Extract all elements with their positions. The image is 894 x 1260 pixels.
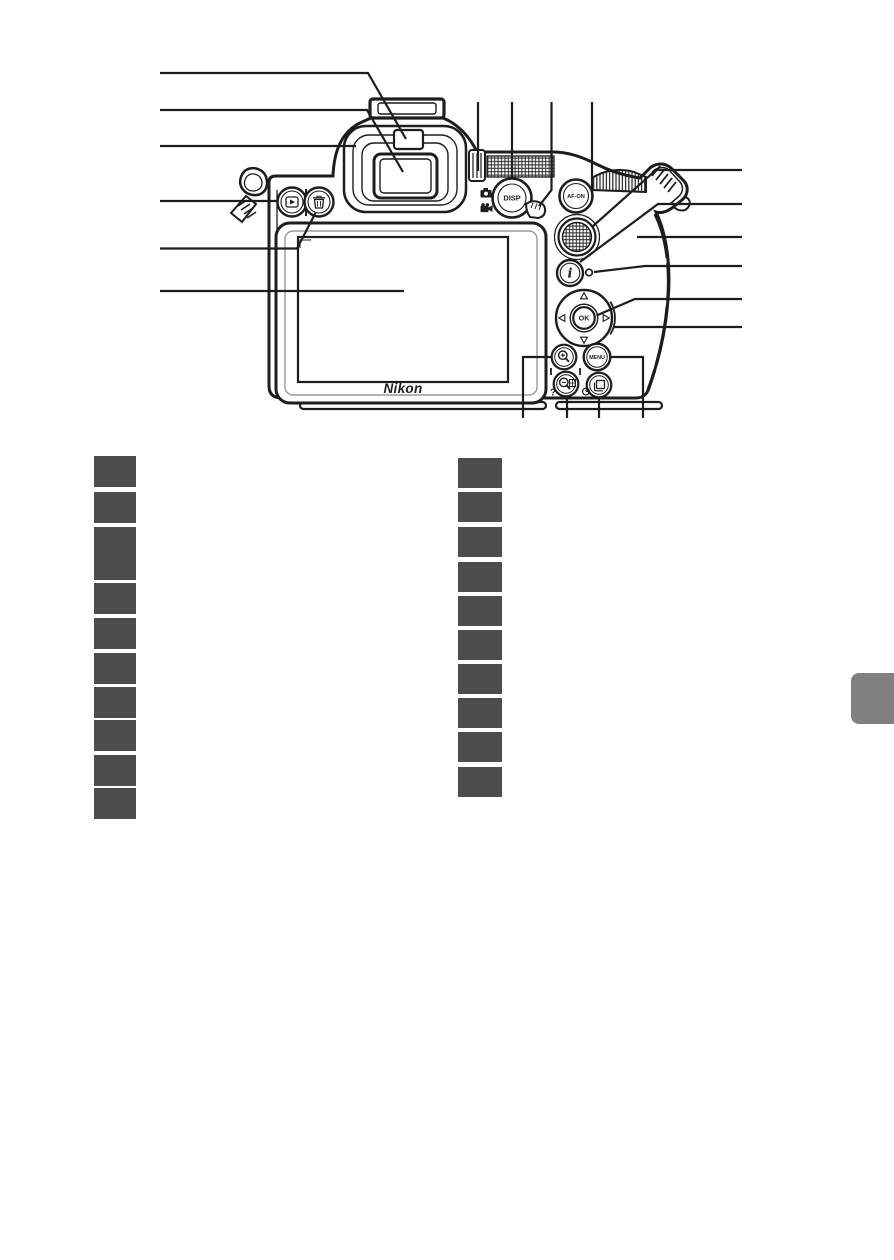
chapter-side-tab xyxy=(851,673,894,724)
delete-button xyxy=(305,188,334,217)
legend-box xyxy=(94,527,136,580)
svg-text:OK: OK xyxy=(579,314,591,323)
trash-icon xyxy=(313,196,325,208)
svg-text:DISP: DISP xyxy=(503,194,520,203)
legend-box xyxy=(458,527,502,557)
question-mark: ? xyxy=(550,388,556,399)
svg-text:AF-ON: AF-ON xyxy=(567,194,585,200)
legend-box xyxy=(458,767,502,797)
legend-box xyxy=(94,492,136,523)
legend-box xyxy=(458,562,502,592)
eye-sensor-icon xyxy=(394,130,423,149)
zoom-in-button xyxy=(552,345,577,370)
manual-page: DISP AF-ON xyxy=(0,0,894,1260)
legend-box xyxy=(94,456,136,487)
legend-box xyxy=(458,664,502,694)
playback-button xyxy=(278,188,307,217)
ok-button: OK xyxy=(573,307,595,329)
base-plate xyxy=(556,402,662,409)
legend-box xyxy=(458,596,502,626)
legend-box xyxy=(94,618,136,649)
legend-box xyxy=(94,653,136,684)
speaker-dot-icon xyxy=(586,269,593,276)
main-command-dial-icon xyxy=(592,170,646,192)
camera-back-diagram: DISP AF-ON xyxy=(0,0,894,440)
legend-box xyxy=(458,698,502,728)
legend-box xyxy=(94,755,136,786)
svg-text:i: i xyxy=(568,267,573,282)
legend-box xyxy=(458,492,502,522)
strap-eyelet-icon xyxy=(231,168,267,222)
monitor: Nikon xyxy=(276,223,546,403)
release-mode-button xyxy=(587,373,612,398)
brand-logo: Nikon xyxy=(383,381,422,396)
disp-button: DISP xyxy=(493,179,532,218)
legend-box xyxy=(458,458,502,488)
monitor-screen xyxy=(298,237,508,382)
photo-movie-selector-icon xyxy=(526,201,545,218)
legend-box xyxy=(94,788,136,819)
legend-box xyxy=(94,720,136,751)
svg-text:MENU: MENU xyxy=(589,355,605,361)
legend-box xyxy=(458,630,502,660)
legend-box xyxy=(458,732,502,762)
menu-button: MENU xyxy=(584,344,611,371)
i-button: i xyxy=(557,260,583,286)
legend-box xyxy=(94,687,136,718)
legend-box xyxy=(94,583,136,614)
zoom-out-button xyxy=(554,372,579,397)
viewfinder-eyepiece-icon xyxy=(380,159,431,193)
thumb-grip-texture xyxy=(487,156,554,177)
af-on-button: AF-ON xyxy=(560,180,593,213)
